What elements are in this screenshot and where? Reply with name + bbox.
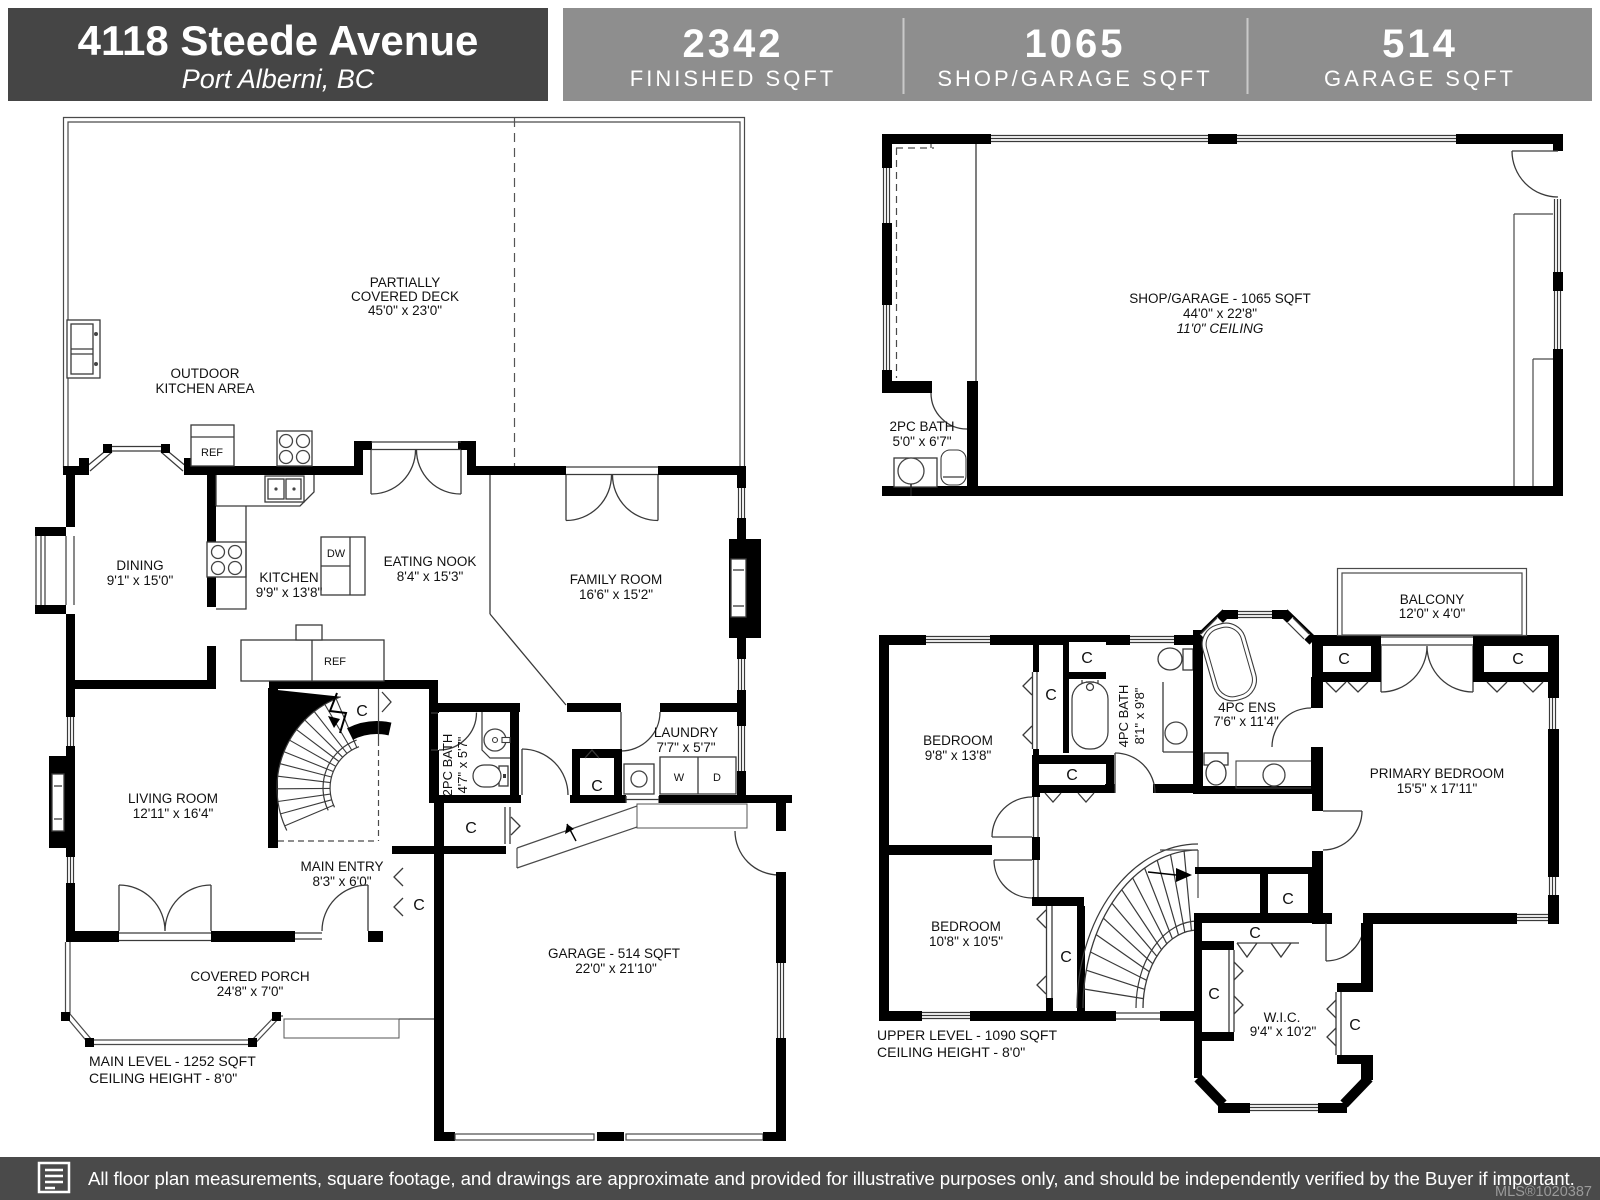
svg-text:PARTIALLY: PARTIALLY — [370, 275, 441, 290]
svg-text:C: C — [356, 703, 368, 720]
svg-text:C: C — [465, 820, 477, 837]
svg-text:11'0" CEILING: 11'0" CEILING — [1177, 321, 1264, 336]
svg-text:W: W — [674, 772, 685, 784]
svg-text:SHOP/GARAGE - 1065 SQFT: SHOP/GARAGE - 1065 SQFT — [1129, 291, 1311, 306]
svg-text:4PC BATH: 4PC BATH — [1116, 685, 1131, 748]
svg-text:All floor plan measurements, s: All floor plan measurements, square foot… — [88, 1168, 1575, 1189]
svg-text:C: C — [1060, 949, 1072, 966]
svg-text:Port Alberni, BC: Port Alberni, BC — [182, 64, 375, 94]
svg-text:C: C — [1045, 687, 1057, 704]
svg-text:EATING NOOK: EATING NOOK — [384, 554, 477, 569]
svg-text:KITCHEN AREA: KITCHEN AREA — [155, 381, 254, 396]
svg-text:C: C — [1282, 891, 1294, 908]
svg-text:PRIMARY BEDROOM: PRIMARY BEDROOM — [1370, 766, 1505, 781]
svg-text:GARAGE SQFT: GARAGE SQFT — [1324, 66, 1516, 91]
svg-text:C: C — [1512, 651, 1524, 668]
svg-text:MLS®1020387: MLS®1020387 — [1495, 1184, 1592, 1200]
svg-text:C: C — [1349, 1017, 1361, 1034]
svg-text:CEILING HEIGHT - 8'0": CEILING HEIGHT - 8'0" — [89, 1070, 237, 1086]
svg-text:1065: 1065 — [1025, 22, 1126, 66]
svg-text:REF: REF — [324, 656, 346, 668]
svg-text:514: 514 — [1382, 22, 1458, 66]
svg-text:FAMILY ROOM: FAMILY ROOM — [570, 572, 663, 587]
svg-text:7'7" x 5'7": 7'7" x 5'7" — [656, 740, 715, 755]
svg-text:COVERED PORCH: COVERED PORCH — [190, 969, 309, 984]
svg-text:8'3" x 6'0": 8'3" x 6'0" — [312, 874, 371, 889]
svg-text:9'4" x 10'2": 9'4" x 10'2" — [1250, 1024, 1317, 1039]
svg-text:22'0" x 21'10": 22'0" x 21'10" — [575, 961, 657, 976]
svg-text:8'4" x 15'3": 8'4" x 15'3" — [397, 569, 464, 584]
svg-text:9'1" x 15'0": 9'1" x 15'0" — [107, 573, 174, 588]
svg-text:LAUNDRY: LAUNDRY — [654, 725, 718, 740]
svg-text:C: C — [1081, 650, 1093, 667]
svg-text:C: C — [1249, 925, 1261, 942]
svg-text:2PC BATH: 2PC BATH — [440, 734, 455, 797]
svg-text:MAIN LEVEL - 1252 SQFT: MAIN LEVEL - 1252 SQFT — [89, 1053, 256, 1069]
svg-text:BALCONY: BALCONY — [1400, 592, 1465, 607]
svg-text:LIVING ROOM: LIVING ROOM — [128, 791, 218, 806]
svg-text:12'11" x 16'4": 12'11" x 16'4" — [133, 806, 214, 821]
svg-text:D: D — [713, 772, 721, 784]
svg-text:4118 Steede Avenue: 4118 Steede Avenue — [78, 17, 479, 64]
svg-text:44'0" x 22'8": 44'0" x 22'8" — [1183, 306, 1257, 321]
svg-text:16'6" x 15'2": 16'6" x 15'2" — [579, 587, 653, 602]
svg-text:9'9" x 13'8": 9'9" x 13'8" — [256, 585, 323, 600]
svg-text:REF: REF — [201, 447, 223, 459]
svg-text:C: C — [1208, 986, 1220, 1003]
svg-text:5'0" x 6'7": 5'0" x 6'7" — [892, 434, 951, 449]
svg-text:10'8" x 10'5": 10'8" x 10'5" — [929, 934, 1003, 949]
svg-text:45'0" x 23'0": 45'0" x 23'0" — [368, 303, 442, 318]
svg-text:CEILING HEIGHT - 8'0": CEILING HEIGHT - 8'0" — [877, 1044, 1025, 1060]
svg-text:4'7" x 5'7": 4'7" x 5'7" — [455, 736, 470, 793]
svg-text:2342: 2342 — [683, 22, 784, 66]
svg-text:MAIN ENTRY: MAIN ENTRY — [300, 859, 383, 874]
svg-text:UPPER LEVEL - 1090 SQFT: UPPER LEVEL - 1090 SQFT — [877, 1027, 1057, 1043]
svg-text:KITCHEN: KITCHEN — [259, 570, 318, 585]
svg-text:2PC BATH: 2PC BATH — [889, 419, 954, 434]
svg-text:C: C — [413, 897, 425, 914]
svg-text:FINISHED SQFT: FINISHED SQFT — [630, 66, 836, 91]
svg-text:OUTDOOR: OUTDOOR — [171, 366, 240, 381]
svg-text:DINING: DINING — [116, 558, 163, 573]
svg-text:C: C — [1338, 651, 1350, 668]
svg-text:4PC ENS: 4PC ENS — [1218, 700, 1276, 715]
svg-text:C: C — [1066, 767, 1078, 784]
svg-text:15'5" x 17'11": 15'5" x 17'11" — [1397, 781, 1478, 796]
svg-text:W.I.C.: W.I.C. — [1264, 1010, 1301, 1025]
svg-text:SHOP/GARAGE SQFT: SHOP/GARAGE SQFT — [937, 66, 1212, 91]
svg-text:7'6" x 11'4": 7'6" x 11'4" — [1213, 714, 1279, 729]
svg-text:C: C — [591, 778, 603, 795]
svg-text:24'8" x 7'0": 24'8" x 7'0" — [217, 984, 284, 999]
svg-text:12'0" x 4'0": 12'0" x 4'0" — [1399, 606, 1466, 621]
svg-text:BEDROOM: BEDROOM — [931, 919, 1001, 934]
svg-text:9'8" x 13'8": 9'8" x 13'8" — [925, 748, 992, 763]
svg-text:BEDROOM: BEDROOM — [923, 733, 993, 748]
svg-text:COVERED DECK: COVERED DECK — [351, 289, 459, 304]
svg-text:8'1" x 9'8": 8'1" x 9'8" — [1132, 687, 1147, 744]
svg-text:DW: DW — [327, 548, 346, 560]
svg-text:GARAGE - 514 SQFT: GARAGE - 514 SQFT — [548, 946, 680, 961]
